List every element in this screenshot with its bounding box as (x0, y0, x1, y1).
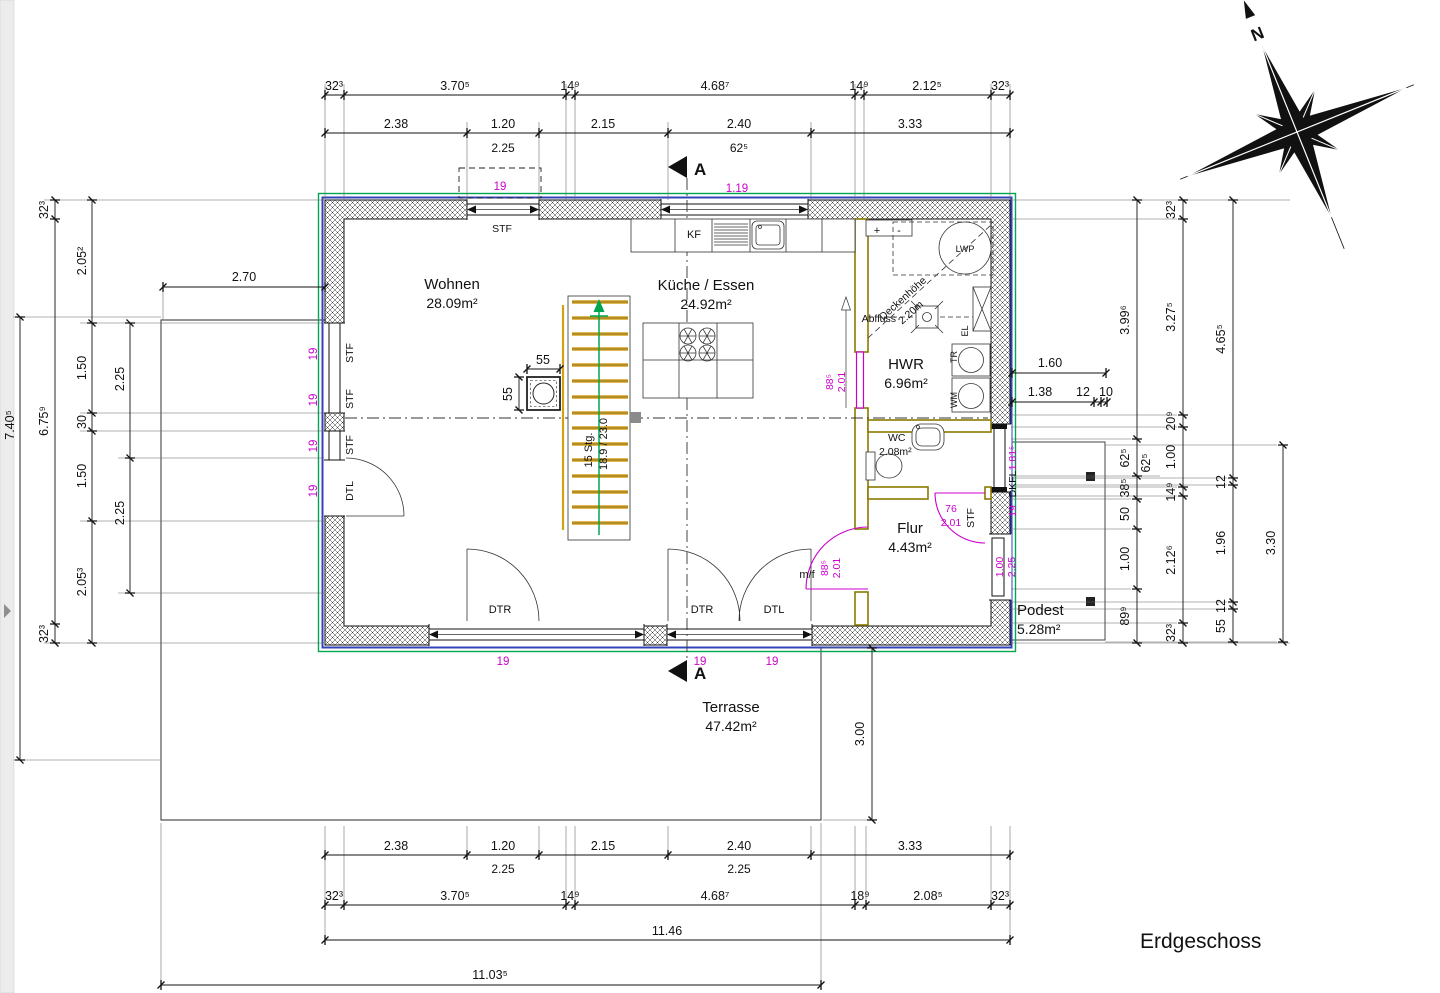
dim-label: 3.33 (898, 117, 922, 131)
magenta-dim: 2.01 (941, 517, 962, 529)
dim-label: 2.25 (113, 367, 127, 391)
dim-label: 2.15 (591, 117, 615, 131)
magenta-dim: 88⁵ (824, 374, 836, 390)
window-label: STF (492, 223, 512, 235)
dim-label: 18⁹ (850, 889, 869, 903)
dim-label: 3.70⁵ (440, 79, 470, 93)
room-area: 5.28m² (1017, 621, 1061, 637)
fixture-label: KF (687, 229, 701, 241)
room-area: 47.42m² (705, 718, 757, 734)
window-label: STF (344, 435, 356, 455)
window-label: STF (965, 508, 977, 528)
dim-label: 1.00 (1118, 547, 1132, 571)
door-label: DTL (344, 481, 356, 501)
fixture-label: TR (949, 351, 959, 363)
dim-label: 1.50 (75, 464, 89, 488)
dim-label: 2.12⁶ (1164, 545, 1178, 574)
door-label: DKFL (1007, 470, 1019, 497)
dim-label: 38⁵ (1118, 478, 1132, 497)
dim-label: 3.33 (898, 839, 922, 853)
magenta-dim: 76 (945, 503, 957, 515)
dim-label: 2.25 (727, 862, 751, 876)
fixture-label: - (897, 225, 901, 237)
dim-label: 14⁹ (849, 79, 868, 93)
staircase (563, 296, 641, 540)
dim-label: 12 (1076, 385, 1090, 399)
door-label: DTR (489, 604, 512, 616)
fixture-label: WM (949, 392, 959, 408)
room-name: Terrasse (702, 699, 760, 716)
magenta-dim: 19 (494, 181, 507, 193)
dim-label: 32³ (1164, 624, 1178, 642)
dim-label: 2.05³ (75, 568, 89, 597)
section-label: A (694, 664, 706, 683)
cad-canvas: 32³ 3.70⁵ 14⁹ 4.68⁷ 14⁹ 2.12⁵ 32³ 2.38 1… (0, 0, 1440, 993)
dim-label: 2.38 (384, 117, 408, 131)
room-area: 6.96m² (884, 375, 928, 391)
magenta-dim: 2.01 (836, 372, 848, 393)
left-panel-strip (0, 0, 14, 993)
room-area: 24.92m² (680, 296, 732, 312)
dim-label: 55 (1214, 619, 1228, 633)
room-name: HWR (888, 356, 924, 373)
dim-label: 32³ (991, 889, 1009, 903)
dim-label: 55 (501, 387, 515, 401)
dim-label: 20⁹ (1164, 411, 1178, 430)
dim-label: 62⁵ (730, 141, 748, 155)
room-name: Podest (1017, 602, 1065, 619)
magenta-dim: 19 (308, 440, 320, 453)
door-label: DTL (764, 604, 785, 616)
dim-label: 4.65⁵ (1214, 324, 1228, 354)
magenta-dim: 1.81⁵ (1007, 446, 1019, 471)
room-area: 4.43m² (888, 539, 932, 555)
dim-label: 14⁹ (1164, 482, 1178, 501)
dim-label: 32³ (37, 201, 51, 219)
column (630, 412, 641, 423)
dim-label: 1.60 (1038, 356, 1062, 370)
magenta-dim: 19 (308, 394, 320, 407)
dim-label: 1.20 (491, 839, 515, 853)
dining-table (643, 323, 753, 398)
dim-label: 89⁹ (1118, 606, 1132, 625)
section-label: A (694, 160, 706, 179)
kitchen-counter (631, 219, 855, 252)
room-area: 2.08m² (879, 446, 912, 458)
dim-label: 12 (1214, 599, 1228, 613)
door-label: m/f (799, 569, 815, 581)
room-name: WC (888, 432, 906, 444)
magenta-dim: 1.19 (726, 183, 748, 195)
dim-label: 3.27⁵ (1164, 302, 1178, 332)
magenta-dim: 1.00 (994, 557, 1006, 578)
floor-title: Erdgeschoss (1140, 930, 1261, 953)
dim-label: 62⁵ (1118, 448, 1132, 467)
dim-label: 4.68⁷ (701, 79, 730, 93)
dim-label: 2.25 (113, 501, 127, 525)
dim-label: 32³ (325, 79, 343, 93)
dim-label: 32³ (37, 625, 51, 643)
kitchen-hwr-door (857, 352, 864, 408)
window-label: STF (344, 343, 356, 363)
dim-label: 11.03⁵ (472, 968, 508, 982)
dim-label: 1.00 (1164, 445, 1178, 469)
room-name: Küche / Essen (658, 277, 755, 294)
toilet-icon (866, 452, 875, 480)
dim-label: 1.50 (75, 356, 89, 380)
podest-post (1086, 472, 1095, 481)
dim-label: 3.00 (853, 722, 867, 746)
dim-label: 7.40⁵ (3, 410, 17, 440)
stairs-label: 15 Stg. (583, 433, 595, 468)
room-name: Wohnen (424, 276, 480, 293)
dim-label: 10 (1099, 385, 1113, 399)
dim-label: 30 (75, 415, 89, 429)
dim-label: 2.70 (232, 270, 256, 284)
dim-label: 1.38 (1028, 385, 1052, 399)
dim-label: 11.46 (652, 924, 682, 938)
dim-label: 3.30 (1264, 531, 1278, 555)
chimney (527, 377, 560, 410)
magenta-dim: 19 (497, 656, 510, 668)
magenta-dim: 2.25 (1006, 557, 1018, 578)
dim-label: 3.70⁵ (440, 889, 470, 903)
magenta-dim: 19 (308, 485, 320, 498)
fixture-label: LWP (956, 244, 975, 254)
dim-label: 2.38 (384, 839, 408, 853)
window-label: STF (344, 389, 356, 409)
dim-label: 4.68⁷ (701, 889, 730, 903)
magenta-dim: 19 (766, 656, 779, 668)
dim-label: 14⁹ (560, 889, 579, 903)
stairs-label: 18.9 / 23.0 (598, 418, 610, 470)
dim-label: 2.25 (491, 862, 515, 876)
dim-label: 32³ (325, 889, 343, 903)
room-area: 28.09m² (426, 295, 478, 311)
dim-label: 3.99⁶ (1118, 305, 1132, 334)
fixture-label: + (874, 225, 880, 237)
magenta-dim: 19 (1007, 505, 1019, 517)
dim-label: 32³ (991, 79, 1009, 93)
fixture-label: EL (960, 325, 970, 336)
dim-label: 2.25 (491, 141, 515, 155)
dim-label: 14⁹ (560, 79, 579, 93)
magenta-dim: 19 (308, 348, 320, 361)
magenta-dim: 88⁵ (819, 560, 831, 576)
podest-post (1086, 597, 1095, 606)
dim-label: 2.40 (727, 117, 751, 131)
dim-label: 62⁵ (1139, 453, 1153, 472)
dim-label: 6.75⁹ (37, 406, 51, 436)
dim-label: 2.08⁵ (913, 889, 943, 903)
floor-plan-drawing: 32³ 3.70⁵ 14⁹ 4.68⁷ 14⁹ 2.12⁵ 32³ 2.38 1… (0, 0, 1440, 993)
dim-label: 1.20 (491, 117, 515, 131)
dim-label: 2.15 (591, 839, 615, 853)
magenta-dim: 2.01 (831, 558, 843, 579)
dim-label: 2.05² (75, 247, 89, 276)
dim-label: 1.96 (1214, 531, 1228, 555)
dim-label: 50 (1118, 507, 1132, 521)
dim-label: 12 (1214, 475, 1228, 489)
drawing-background (0, 0, 1440, 993)
dim-label: 55 (536, 353, 550, 367)
dim-label: 2.40 (727, 839, 751, 853)
door-label: DTR (691, 604, 714, 616)
room-name: Flur (897, 520, 923, 537)
dim-label: 2.12⁵ (912, 79, 942, 93)
dim-label: 32³ (1164, 201, 1178, 219)
